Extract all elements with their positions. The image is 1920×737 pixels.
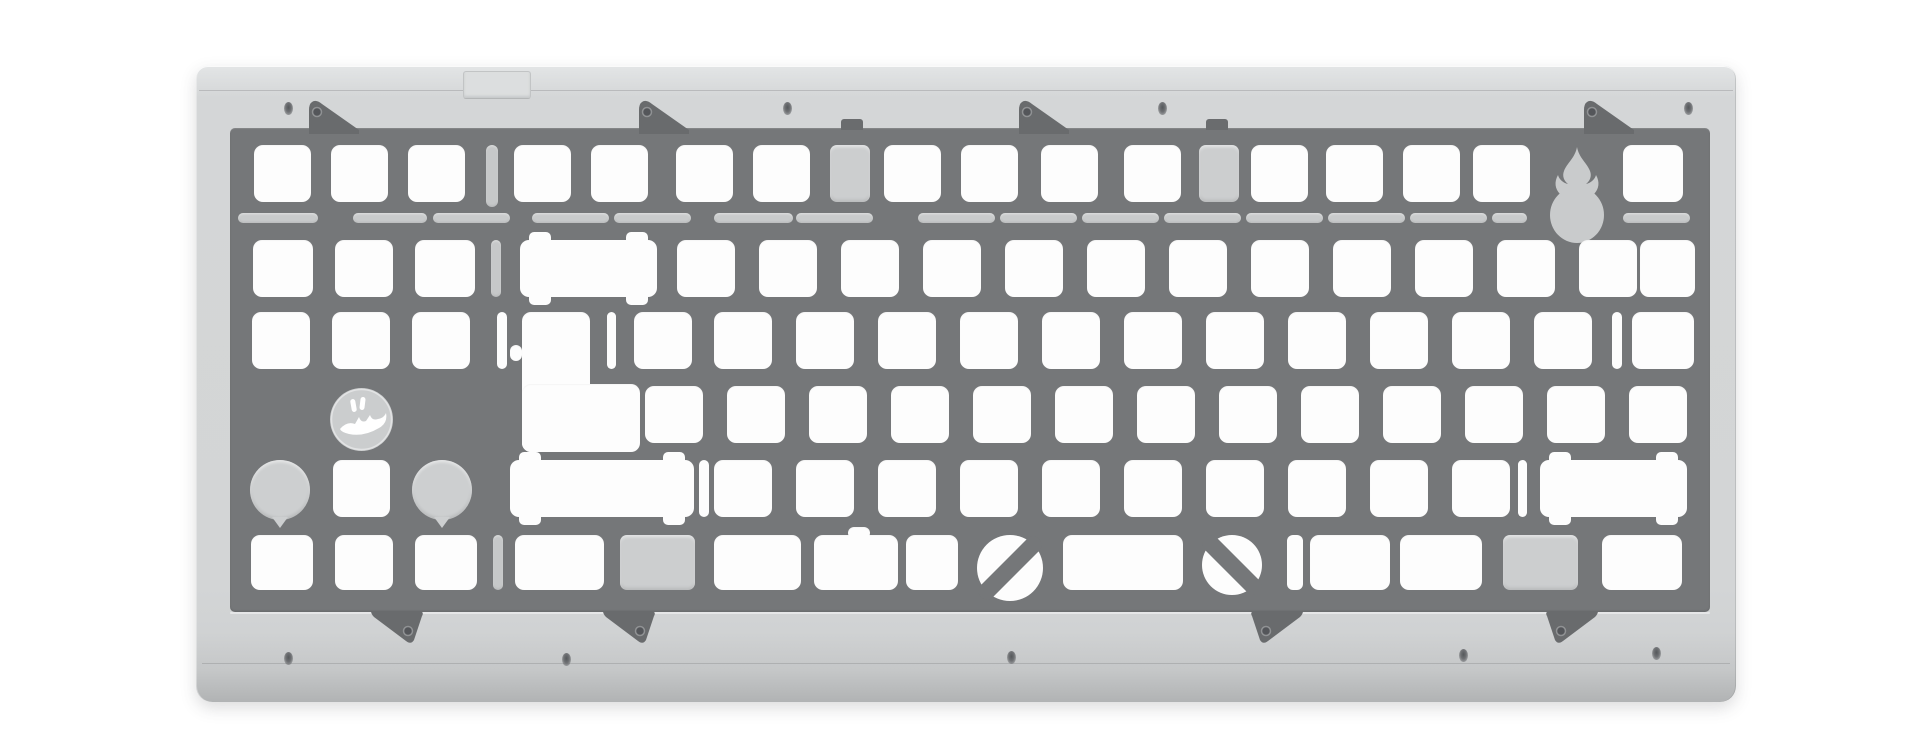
switch-cutout: [848, 527, 870, 539]
switch-cutout: [1333, 240, 1391, 297]
blocked-switch-pocket: [1199, 145, 1239, 202]
switch-cutout: [1288, 312, 1346, 369]
mounting-tab-icon: [636, 100, 692, 134]
switch-cutout: [1547, 386, 1605, 443]
switch-cutout: [878, 460, 936, 517]
switch-cutout: [906, 535, 958, 590]
switch-cutout: [333, 460, 390, 517]
switch-cutout: [254, 145, 311, 202]
flex-cut-slot: [714, 213, 793, 223]
switch-cutout: [814, 535, 898, 590]
encoder-hole: [412, 460, 472, 520]
switch-cutout: [1465, 386, 1523, 443]
switch-cutout: [878, 312, 936, 369]
flex-cut-slot: [1082, 213, 1159, 223]
mascot-badge-icon: [330, 388, 393, 451]
switch-cutout: [1370, 312, 1428, 369]
relief-slot: [1287, 535, 1303, 590]
switch-cutout: [335, 535, 393, 590]
switch-cutout: [759, 240, 817, 297]
alignment-hook: [1206, 119, 1228, 130]
switch-cutout: [1005, 240, 1063, 297]
diagonal-slot-left-icon: [977, 535, 1043, 601]
switch-cutout: [1632, 312, 1694, 369]
flex-cut-slot: [1623, 213, 1690, 223]
alignment-hook: [841, 119, 863, 130]
switch-cutout: [415, 240, 475, 297]
blocked-switch-pocket: [830, 145, 870, 202]
switch-cutout: [514, 145, 571, 202]
switch-cutout: [714, 535, 801, 590]
switch-cutout: [1206, 460, 1264, 517]
switch-cutout: [1415, 240, 1473, 297]
switch-cutout: [515, 535, 604, 590]
switch-cutout: [1124, 460, 1182, 517]
flex-cut-slot: [614, 213, 691, 223]
switch-cutout: [1310, 535, 1390, 590]
switch-cutout: [676, 145, 733, 202]
flex-cut-slot: [532, 213, 609, 223]
keyboard-case: [196, 66, 1736, 702]
relief-slot: [1518, 460, 1527, 517]
stabilized-switch-cutout: [510, 460, 694, 517]
usb-notch: [463, 71, 531, 99]
switch-cutout: [412, 312, 470, 369]
flex-cut-slot: [238, 213, 318, 223]
flex-cut-slot: [1492, 213, 1527, 223]
flex-cut-slot: [1000, 213, 1077, 223]
switch-cutout: [753, 145, 810, 202]
switch-cutout: [960, 312, 1018, 369]
switch-cutout: [1169, 240, 1227, 297]
switch-cutout: [1288, 460, 1346, 517]
switch-cutout: [714, 460, 772, 517]
switch-cutout: [252, 312, 310, 369]
switch-cutout: [1137, 386, 1195, 443]
switch-cutout: [1473, 145, 1530, 202]
blocked-switch-pocket: [1503, 535, 1578, 590]
switch-cutout: [1452, 460, 1510, 517]
switch-cutout: [253, 240, 313, 297]
page-title: Mechanical keyboard switch plate render …: [0, 21, 1, 22]
switch-cutout: [796, 312, 854, 369]
mounting-tab-icon: [1545, 611, 1601, 645]
switch-cutout: [841, 240, 899, 297]
switch-cutout: [1251, 145, 1308, 202]
mounting-tab-icon: [1016, 100, 1072, 134]
screw-hole-icon: [1007, 651, 1016, 664]
flex-cut-slot: [918, 213, 995, 223]
switch-cutout: [1629, 386, 1687, 443]
switch-cutout: [251, 535, 313, 590]
switch-cutout: [408, 145, 465, 202]
switch-cutout: [335, 240, 393, 297]
screw-hole-icon: [1652, 647, 1661, 660]
switch-cutout: [1602, 535, 1682, 590]
switch-cutout: [714, 312, 772, 369]
switch-cutout: [1301, 386, 1359, 443]
switch-cutout: [1041, 145, 1098, 202]
switch-cutout: [332, 312, 390, 369]
switch-cutout: [1055, 386, 1113, 443]
screw-hole-icon: [284, 102, 293, 115]
switch-cutout: [1251, 240, 1309, 297]
flex-relief-slot: [486, 145, 498, 207]
flex-cut-slot: [433, 213, 510, 223]
switch-cutout: [796, 460, 854, 517]
switch-cutout: [1124, 312, 1182, 369]
switch-cutout: [634, 312, 692, 369]
switch-cutout: [1403, 145, 1460, 202]
mounting-tab-icon: [1581, 100, 1637, 134]
screw-hole-icon: [1158, 102, 1167, 115]
iso-enter-cutout: [510, 345, 522, 361]
switch-cutout: [1042, 312, 1100, 369]
switch-cutout: [1383, 386, 1441, 443]
switch-cutout: [727, 386, 785, 443]
switch-cutout: [1400, 535, 1482, 590]
switch-cutout: [891, 386, 949, 443]
switch-cutout: [961, 145, 1018, 202]
flex-cut-slot: [1410, 213, 1487, 223]
screw-hole-icon: [1684, 102, 1693, 115]
switch-cutout: [1042, 460, 1100, 517]
flex-cut-slot: [1246, 213, 1323, 223]
switch-cutout: [973, 386, 1031, 443]
screw-hole-icon: [562, 653, 571, 666]
flex-relief-slot: [493, 535, 503, 590]
relief-slot: [607, 312, 616, 369]
plate-seam: [230, 612, 1710, 614]
mounting-tab-icon: [306, 100, 362, 134]
switch-cutout: [1206, 312, 1264, 369]
switch-cutout: [1640, 240, 1695, 297]
screw-hole-icon: [783, 102, 792, 115]
switch-cutout: [591, 145, 648, 202]
switch-cutout: [1579, 240, 1637, 297]
switch-cutout: [1124, 145, 1181, 202]
flex-cut-slot: [1164, 213, 1241, 223]
switch-cutout: [1063, 535, 1183, 590]
mounting-tab-icon: [368, 611, 424, 645]
flex-cut-slot: [796, 213, 873, 223]
switch-cutout: [1452, 312, 1510, 369]
stabilized-switch-cutout: [1540, 460, 1687, 517]
relief-slot: [497, 312, 507, 369]
switch-cutout: [645, 386, 703, 443]
stabilized-switch-cutout: [520, 240, 657, 297]
switch-cutout: [884, 145, 941, 202]
switch-cutout: [1219, 386, 1277, 443]
mounting-tab-icon: [1250, 611, 1306, 645]
relief-slot: [699, 460, 709, 517]
switch-cutout: [331, 145, 388, 202]
flame-icon: [1548, 145, 1606, 245]
switch-cutout: [1623, 145, 1683, 202]
iso-enter-cutout: [522, 384, 640, 452]
switch-cutout: [1370, 460, 1428, 517]
switch-cutout: [1534, 312, 1592, 369]
flex-cut-slot: [353, 213, 427, 223]
keyboard-plate-render: Mechanical keyboard switch plate render …: [0, 0, 1920, 737]
switch-cutout: [923, 240, 981, 297]
screw-hole-icon: [1459, 649, 1468, 662]
switch-cutout: [677, 240, 735, 297]
relief-slot: [1612, 312, 1622, 369]
switch-plate: [230, 128, 1710, 612]
diagonal-slot-right-icon: [1202, 535, 1262, 595]
switch-cutout: [960, 460, 1018, 517]
flex-relief-slot: [491, 240, 501, 297]
encoder-hole: [250, 460, 310, 520]
blocked-switch-pocket: [620, 535, 695, 590]
switch-cutout: [1087, 240, 1145, 297]
flex-cut-slot: [1328, 213, 1405, 223]
screw-hole-icon: [284, 652, 293, 665]
mounting-tab-icon: [600, 611, 656, 645]
switch-cutout: [1497, 240, 1555, 297]
switch-cutout: [1326, 145, 1383, 202]
switch-cutout: [809, 386, 867, 443]
switch-cutout: [415, 535, 477, 590]
